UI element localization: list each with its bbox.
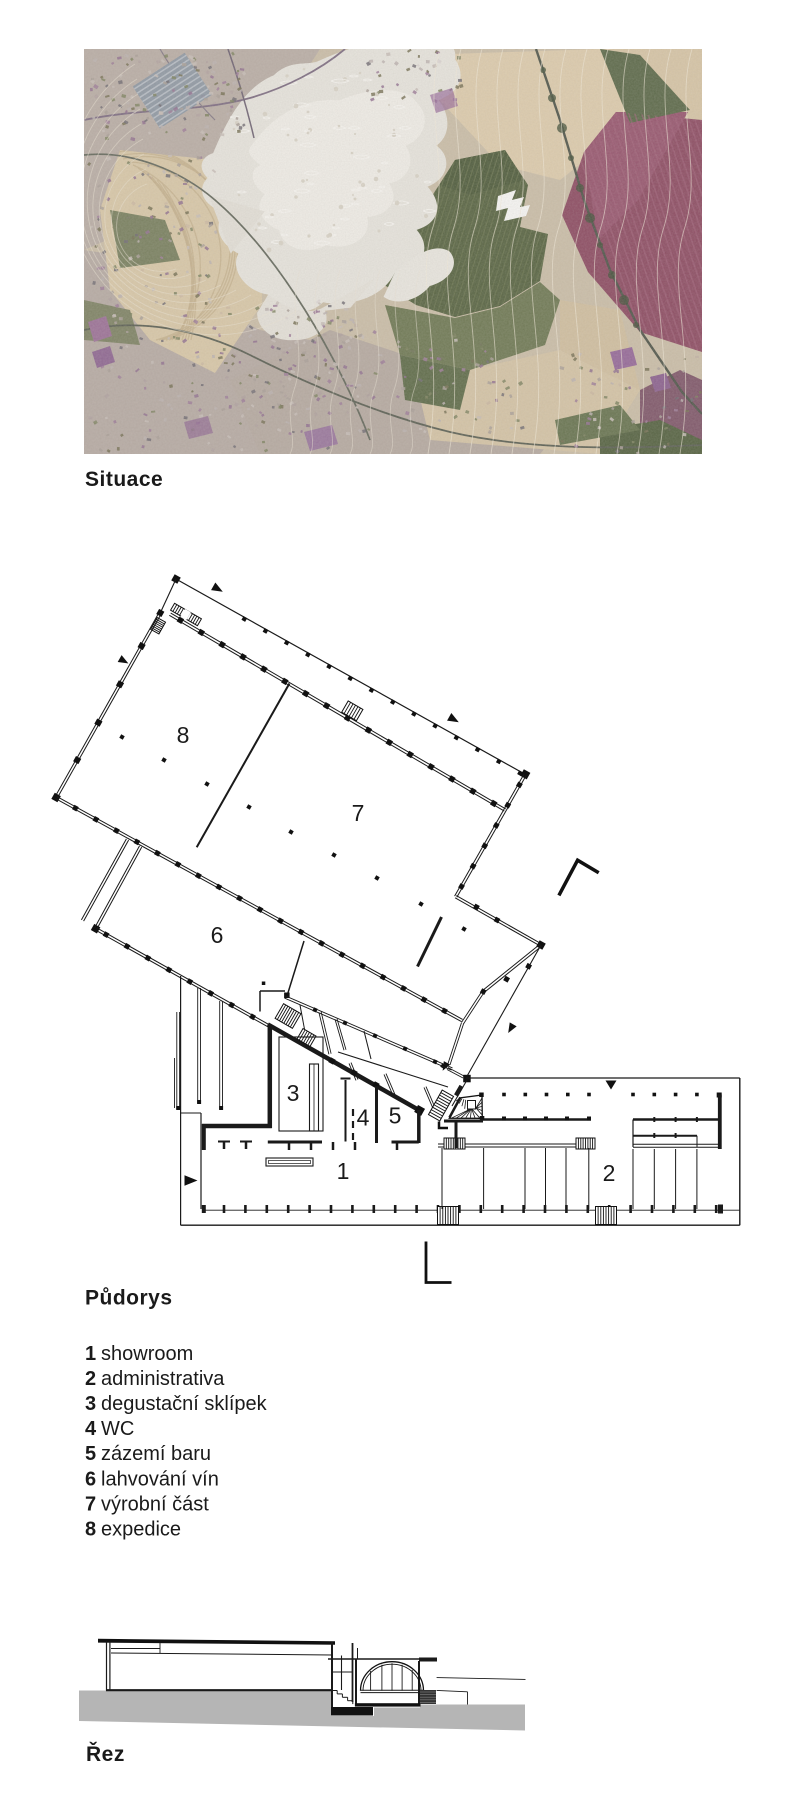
svg-text:showroom: showroom — [101, 1343, 193, 1365]
svg-text:expedice: expedice — [101, 1519, 181, 1541]
svg-text:6: 6 — [85, 1468, 96, 1490]
svg-text:7: 7 — [352, 800, 365, 826]
svg-text:4: 4 — [85, 1418, 97, 1440]
svg-text:2: 2 — [603, 1160, 616, 1186]
svg-text:degustační sklípek: degustační sklípek — [101, 1393, 268, 1415]
svg-text:6: 6 — [211, 922, 224, 948]
svg-text:4: 4 — [357, 1105, 370, 1131]
svg-text:5: 5 — [85, 1443, 96, 1465]
svg-text:administrativa: administrativa — [101, 1368, 225, 1390]
svg-text:1: 1 — [85, 1343, 96, 1365]
svg-text:WC: WC — [101, 1418, 134, 1440]
svg-text:3: 3 — [85, 1393, 96, 1415]
svg-text:1: 1 — [337, 1158, 350, 1184]
svg-text:výrobní část: výrobní část — [101, 1493, 209, 1515]
svg-text:3: 3 — [287, 1080, 300, 1106]
svg-text:2: 2 — [85, 1368, 96, 1390]
svg-text:7: 7 — [85, 1493, 96, 1515]
svg-text:8: 8 — [177, 722, 190, 748]
svg-text:zázemí baru: zázemí baru — [101, 1443, 211, 1465]
svg-text:Řez: Řez — [86, 1742, 125, 1766]
svg-text:8: 8 — [85, 1519, 96, 1541]
svg-text:5: 5 — [389, 1103, 402, 1129]
svg-text:Situace: Situace — [85, 468, 163, 491]
svg-text:Půdorys: Půdorys — [85, 1287, 173, 1310]
svg-text:lahvování vín: lahvování vín — [101, 1468, 219, 1490]
